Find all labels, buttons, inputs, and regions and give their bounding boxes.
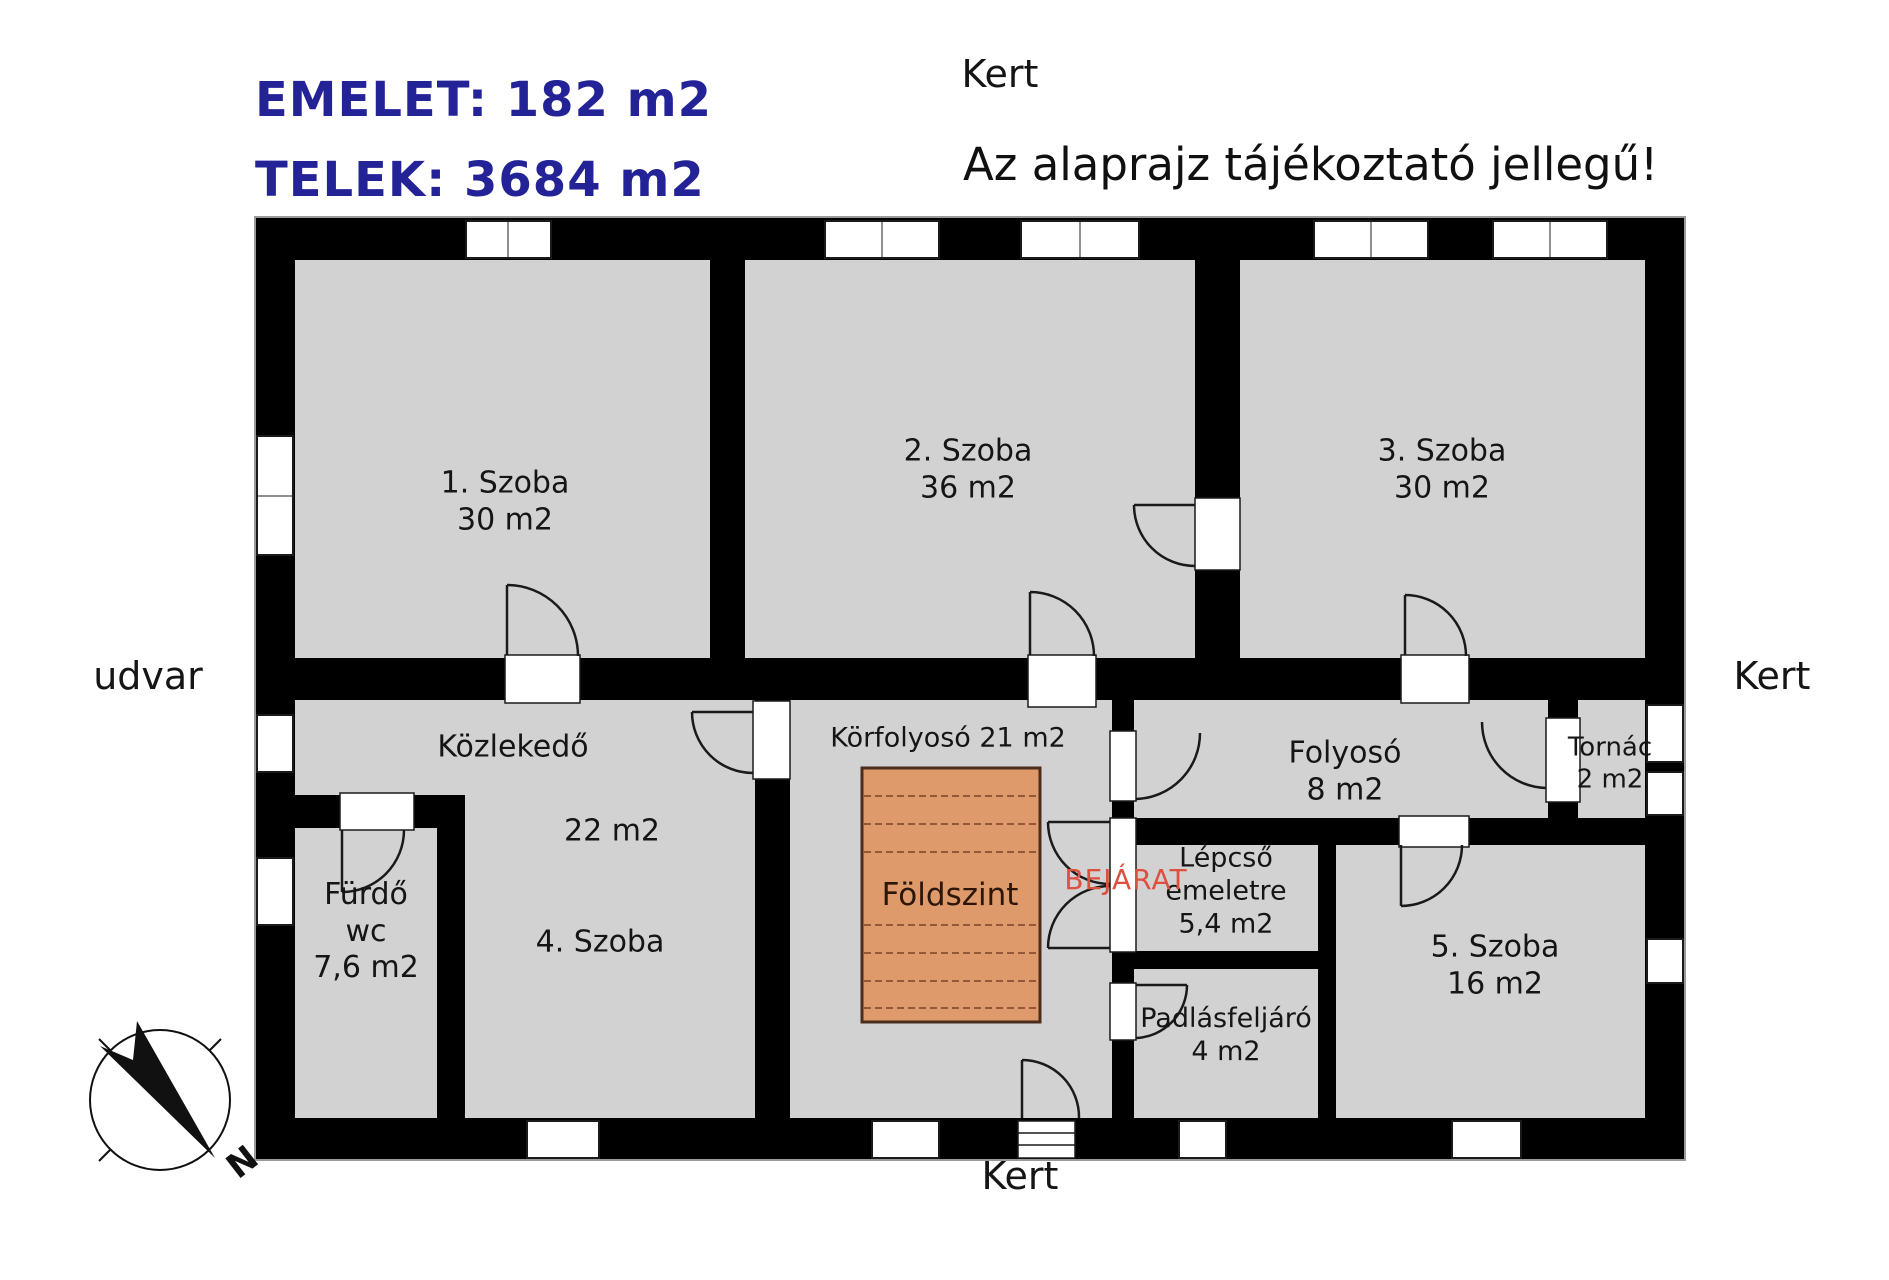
room5-label: 5. Szoba16 m2 [1431, 929, 1560, 1002]
door-gap-hall-korfolyoso [753, 701, 790, 779]
window-tornac-right-lower [1647, 772, 1683, 815]
window-room5-bottom [1452, 1121, 1521, 1158]
door-gap-room2-room3 [1195, 498, 1240, 570]
room1-label: 1. Szoba30 m2 [441, 465, 570, 538]
porch-label: Tornác2 m2 [1568, 732, 1652, 795]
bathroom-right-wall [437, 795, 465, 1118]
door-gap-room2-korfolyoso [1028, 655, 1096, 707]
floorplan-page: EMELET: 182 m2 TELEK: 3684 m2 Az alapraj… [0, 0, 1889, 1280]
hall-area-label: 22 m2 [564, 814, 660, 851]
hall-label: Közlekedő [437, 730, 588, 767]
bathroom-label: Fürdőwc7,6 m2 [313, 877, 419, 987]
room2-label: 2. Szoba36 m2 [904, 433, 1033, 506]
room1-area [295, 260, 710, 658]
window-room5-right [1647, 939, 1683, 983]
floorplan-drawing: N [0, 0, 1889, 1280]
door-gap-korfolyoso-folyoso [1110, 731, 1136, 801]
door-gap-bathroom [340, 793, 414, 830]
attic-access-label: Padlásfeljáró4 m2 [1140, 1003, 1312, 1069]
door-gap-garden-back [1018, 1121, 1075, 1158]
door-gap-room1-hall [505, 655, 580, 703]
window-bathroom-left [257, 858, 293, 925]
room4-label: 4. Szoba [536, 925, 665, 962]
room3-label: 3. Szoba30 m2 [1378, 433, 1507, 506]
window-korfolyoso-bottom [872, 1121, 939, 1158]
window-padlas-bottom [1179, 1121, 1226, 1158]
entrance-label: BEJÁRAT [1064, 863, 1187, 897]
window-room4-bottom [527, 1121, 599, 1158]
door-gap-room3-folyoso [1401, 655, 1469, 703]
compass-icon: N [90, 1021, 266, 1187]
door-gap-folyoso-room5 [1399, 816, 1469, 847]
corridor-label: Folyosó8 m2 [1289, 735, 1402, 808]
window-tornac-right-upper [1647, 705, 1683, 762]
door-gap-padlas [1110, 983, 1136, 1040]
window-hall-left [257, 715, 293, 772]
korfolyoso-label: Körfolyosó 21 m2 [830, 723, 1066, 756]
ground-floor-label: Földszint [882, 877, 1019, 915]
